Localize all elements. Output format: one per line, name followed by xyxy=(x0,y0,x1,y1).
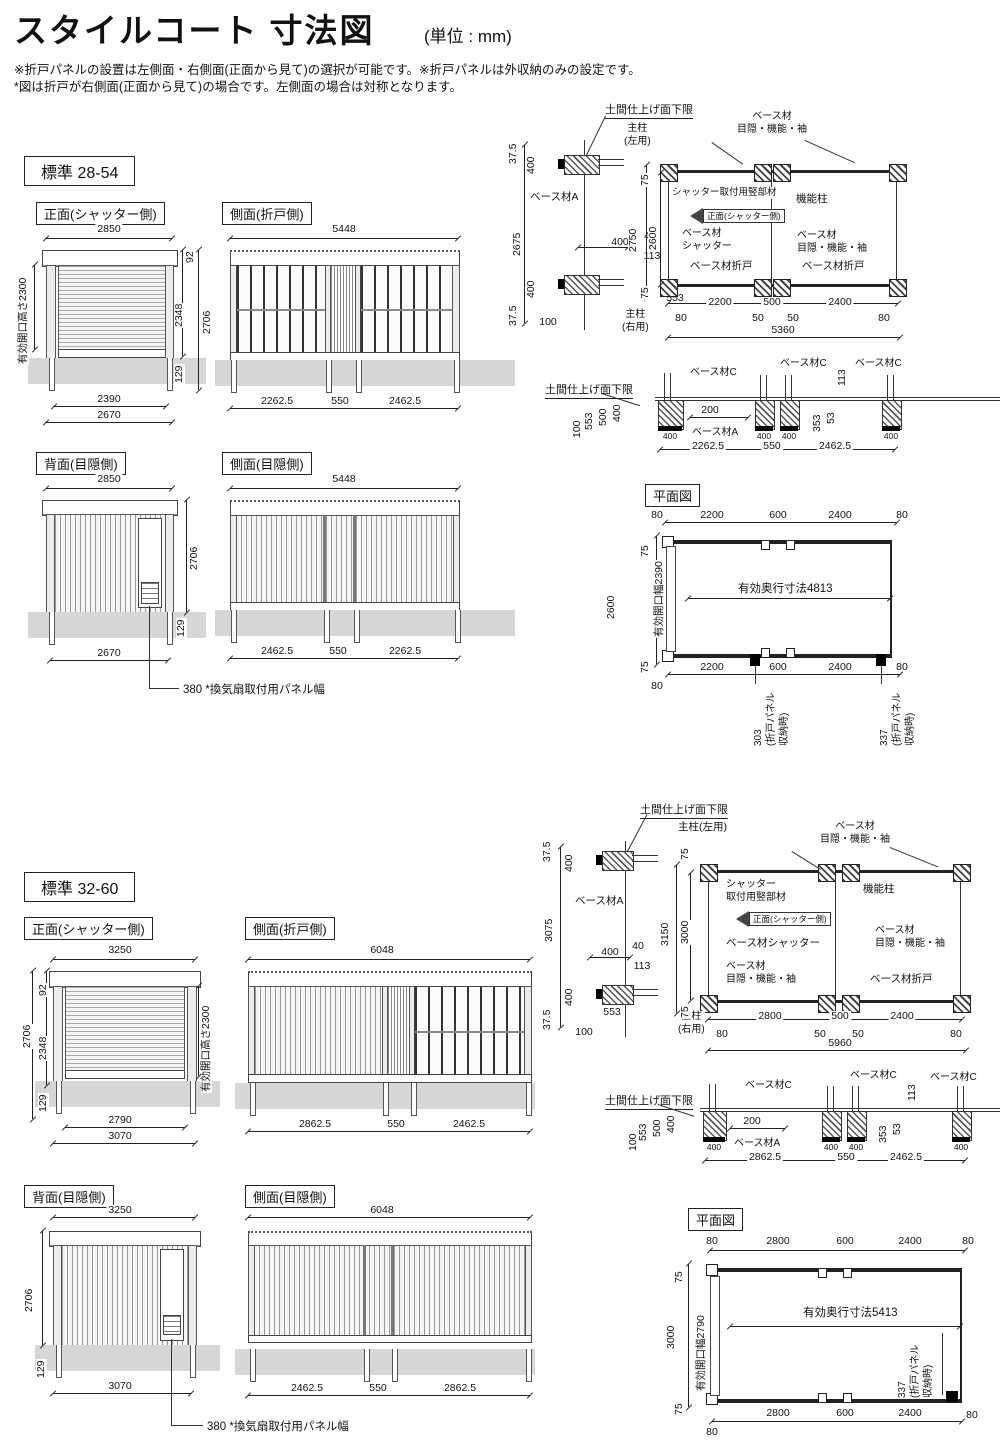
callout-leader xyxy=(942,1333,943,1395)
dim-line xyxy=(590,957,630,958)
mks-label-line: 目隠・機能・袖 xyxy=(737,124,807,137)
ground-strip xyxy=(215,360,515,386)
dim-label: 2462.5 xyxy=(451,1119,487,1131)
pin-line xyxy=(957,1086,958,1111)
base-block xyxy=(558,159,564,169)
dim-label: 400 xyxy=(526,155,537,175)
s2-side-priv-view: 側面(目隠側) 6048 2462.5 550 2862.5 xyxy=(235,1183,535,1451)
view-title: 正面(シャッター側) xyxy=(24,917,153,940)
dim-label: 2400 xyxy=(826,510,853,522)
pin-line xyxy=(598,279,624,280)
effective-depth-label: 有効奥行寸法5413 xyxy=(803,1304,898,1320)
frame-side xyxy=(708,873,709,1000)
main-post-left-label: 主柱(左用) xyxy=(678,821,727,834)
post-leg xyxy=(383,1083,389,1116)
post-leg xyxy=(49,358,55,391)
base-label-line: ベース材 xyxy=(797,230,867,243)
base-block xyxy=(558,279,564,289)
shutter-member-line1: シャッター xyxy=(726,879,786,892)
pin-line xyxy=(887,375,888,400)
stow-dim: 337 xyxy=(878,693,891,746)
panel-rail xyxy=(237,309,326,311)
dim-label: 92 xyxy=(185,250,196,264)
dim-label: 75 xyxy=(674,1270,685,1284)
post xyxy=(453,515,460,611)
leader-line xyxy=(791,851,820,870)
dim-label: 37.5 xyxy=(542,841,553,863)
frame-side xyxy=(668,173,669,284)
dim-label: 2670 xyxy=(95,648,122,660)
dim-label: 2400 xyxy=(896,1408,923,1420)
dim-label: 3000 xyxy=(680,920,691,945)
pin-line xyxy=(598,159,624,160)
post xyxy=(53,986,63,1087)
shutter-member-label: シャッター 取付用竪部材 xyxy=(726,879,786,904)
mks-label-line: 目隠・機能・袖 xyxy=(726,974,796,987)
dim-label: 40 xyxy=(630,941,646,953)
dim-line xyxy=(53,959,195,960)
post xyxy=(187,986,197,1087)
base-c-label: ベース材C xyxy=(780,358,827,371)
dim-label: 5448 xyxy=(330,474,357,486)
dim-label: 6048 xyxy=(368,1205,395,1217)
view-title: 正面(シャッター側) xyxy=(36,202,165,225)
callout-leader xyxy=(881,666,882,684)
floor-limit-label: 土間仕上げ面下限 xyxy=(605,101,693,119)
dim-label: 80 xyxy=(704,1236,720,1248)
dim-line xyxy=(578,247,628,248)
dim-line xyxy=(730,1326,960,1327)
dim-label: 113 xyxy=(907,1083,918,1102)
dim-label: 550 xyxy=(327,646,349,658)
dim-label: 400 xyxy=(781,432,797,441)
dim-line xyxy=(54,406,166,407)
base-a-label: ベース材A xyxy=(575,895,623,908)
s1-detail: 土間仕上げ面下限 37.5 400 2675 400 37.5 ベース材A 40… xyxy=(500,95,1000,355)
shutter-panel xyxy=(58,265,166,351)
s1-side-priv-view: 側面(目隠側) 5448 2462.5 550 2262.5 xyxy=(215,450,515,710)
stow-note-line2: 収納時) xyxy=(904,693,917,746)
post xyxy=(248,1245,255,1343)
dim-label: 2706 xyxy=(24,1288,35,1313)
dim-label: 80 xyxy=(649,510,665,522)
s2-front-view: 正面(シャッター側) 3250 92 2706 2348 129 有効開口高さ2… xyxy=(10,915,230,1160)
page-title: スタイルコート 寸法図 xyxy=(14,4,375,52)
base-mks-label-top: ベース材 目隠・機能・袖 xyxy=(737,111,807,136)
post-leg xyxy=(49,612,55,645)
floor-limit-label: 土間仕上げ面下限 xyxy=(605,1092,693,1110)
dim-label: 80 xyxy=(704,1427,720,1439)
dim-label: 600 xyxy=(834,1408,856,1420)
floor-limit-label: 土間仕上げ面下限 xyxy=(545,381,633,399)
post-plan xyxy=(843,1393,852,1403)
post-section xyxy=(818,864,836,882)
base-label-line: ベース材 xyxy=(737,111,807,124)
dim-line xyxy=(690,417,748,418)
stow-callout: 337 (折戸パネル 収納時) xyxy=(896,1345,935,1398)
dim-label: 400 xyxy=(564,987,575,1007)
dim-line xyxy=(248,1217,530,1218)
dim-label: 400 xyxy=(953,1143,969,1152)
post-leg xyxy=(231,610,237,643)
plan-wall-top xyxy=(668,540,892,544)
pin-line xyxy=(632,855,658,856)
dim-label: 2462.5 xyxy=(259,646,295,658)
dim-line xyxy=(660,173,661,284)
shutter-opening xyxy=(710,1276,720,1396)
dim-label: 75 xyxy=(680,847,691,861)
pin-line xyxy=(632,989,658,990)
dim-label: 113 xyxy=(632,961,653,973)
base-a-label: ベース材A xyxy=(734,1138,780,1151)
dim-label: 53 xyxy=(892,1122,903,1136)
view-title: 背面(目隠側) xyxy=(36,452,126,475)
post xyxy=(323,515,326,609)
dim-label: 75 xyxy=(640,286,651,300)
dim-line xyxy=(668,674,900,675)
dim-label: 2400 xyxy=(826,297,853,309)
base-c-label: ベース材C xyxy=(690,367,737,380)
base-c-label: ベース材C xyxy=(850,1070,897,1083)
post-plan xyxy=(818,1393,827,1403)
dim-line xyxy=(230,658,458,659)
dim-label: 2862.5 xyxy=(442,1383,478,1395)
post-leg xyxy=(250,1083,256,1116)
dim-label: 50 xyxy=(750,313,766,325)
front-direction-arrow: 正面(シャッター側) xyxy=(682,208,785,224)
dim-label: 5448 xyxy=(330,224,357,236)
dim-label: 553 xyxy=(584,411,595,431)
frame-side xyxy=(896,173,897,284)
dim-label: 50 xyxy=(785,313,801,325)
unit-note: (単位 : mm) xyxy=(424,22,512,47)
post-plan xyxy=(761,648,770,658)
post-section xyxy=(700,864,718,882)
folding-panel xyxy=(236,265,327,361)
effective-depth-label: 有効奥行寸法4813 xyxy=(738,580,833,596)
pin-line xyxy=(598,165,624,166)
bottom-rail xyxy=(58,349,166,358)
dim-line xyxy=(665,522,897,523)
stow-note-line1: (折戸パネル xyxy=(891,693,904,746)
section-label-28-54: 標準 28-54 xyxy=(24,156,135,186)
pin-line xyxy=(833,1086,834,1111)
function-post-label: 機能柱 xyxy=(796,193,828,206)
base-block xyxy=(602,985,634,1005)
drawing-sheet: スタイルコート 寸法図 (単位 : mm) ※折戸パネルの設置は左側面・右側面(… xyxy=(0,0,1000,1451)
mks-label-line: 目隠・機能・袖 xyxy=(820,834,890,847)
post-plan xyxy=(843,1268,852,1278)
mks-label-line: 目隠・機能・袖 xyxy=(875,938,945,951)
base-mks-label-right: ベース材 目隠・機能・袖 xyxy=(797,230,867,255)
stow-callout: 303 (折戸パネル 収納時) xyxy=(752,693,791,746)
post xyxy=(525,1245,532,1343)
dim-label: 2348 xyxy=(174,303,185,328)
dim-label: 600 xyxy=(767,510,789,522)
vent-grille xyxy=(163,1315,181,1335)
dim-label: 2675 xyxy=(512,232,523,257)
dim-label: 80 xyxy=(964,1410,980,1422)
dim-label: 550 xyxy=(385,1119,407,1131)
dim-label: 75 xyxy=(680,1005,691,1019)
stow-dim: 303 xyxy=(752,693,765,746)
dim-label: 2800 xyxy=(756,1011,783,1023)
dim-line xyxy=(668,337,900,338)
dim-label: 3250 xyxy=(106,1205,133,1217)
effective-opening-height-label: 有効開口高さ2300 xyxy=(201,1005,212,1093)
plan-wall-bottom xyxy=(712,1399,962,1403)
post-plan xyxy=(706,1264,718,1276)
view-title: 側面(目隠側) xyxy=(245,1185,335,1208)
post-section xyxy=(773,164,791,182)
bottom-rail xyxy=(248,1074,532,1083)
dim-label: 353 xyxy=(812,413,823,433)
post xyxy=(363,1245,366,1341)
view-title: 平面図 xyxy=(645,484,700,507)
dim-label: 37.5 xyxy=(508,305,519,327)
folding-panel xyxy=(414,986,526,1083)
dim-label: 3250 xyxy=(106,945,133,957)
shutter-panel xyxy=(65,986,185,1074)
pin-line xyxy=(709,1084,710,1111)
pin-line xyxy=(858,1086,859,1111)
dim-line xyxy=(46,422,172,423)
view-title: 背面(目隠側) xyxy=(24,1185,114,1208)
dim-line xyxy=(42,1231,43,1345)
base-mks-label-top: ベース材 目隠・機能・袖 xyxy=(820,821,890,846)
dim-label: 2462.5 xyxy=(817,441,853,453)
post-leg xyxy=(392,1349,398,1382)
post-section xyxy=(889,164,907,182)
dim-label: 75 xyxy=(674,1402,685,1416)
dim-label: 2790 xyxy=(106,1115,133,1127)
dim-line xyxy=(46,488,172,489)
post-section xyxy=(773,279,791,297)
privacy-slats xyxy=(254,986,384,1083)
leader-line xyxy=(890,847,939,867)
dim-line xyxy=(248,1131,530,1132)
dim-label: 2462.5 xyxy=(387,396,423,408)
dim-label: 5360 xyxy=(769,325,796,337)
pin-line xyxy=(852,1086,853,1111)
note-2: *図は折戸が右側面(正面から見て)の場合です。左側面の場合は対称となります。 xyxy=(14,76,462,95)
dim-label: 400 xyxy=(666,1114,677,1134)
post-leg xyxy=(231,360,237,393)
dim-label: 2348 xyxy=(38,1036,49,1061)
callout-leader xyxy=(755,666,756,684)
s2-side-fold-view: 側面(折戸側) 6048 2862.5 550 2462.5 xyxy=(235,915,535,1160)
dim-line xyxy=(186,500,187,612)
post-leg xyxy=(190,1081,196,1114)
stow-note-line2: 収納時) xyxy=(778,693,791,746)
post-leg xyxy=(354,610,360,643)
post-section xyxy=(754,164,772,182)
dim-label: 2200 xyxy=(698,662,725,674)
dim-line xyxy=(230,488,458,489)
frame-mid xyxy=(835,873,836,1000)
dim-label: 600 xyxy=(834,1236,856,1248)
leader-line xyxy=(805,140,856,163)
post-section xyxy=(953,864,971,882)
view-title: 側面(折戸側) xyxy=(245,917,335,940)
post xyxy=(391,1245,394,1341)
post-leg xyxy=(364,1349,370,1382)
dim-label: 2400 xyxy=(896,1236,923,1248)
dim-label: 200 xyxy=(741,1116,763,1128)
main-post-right-label: 主柱 (右用) xyxy=(622,309,649,334)
dim-label: 3150 xyxy=(660,922,671,947)
pin-line xyxy=(827,1086,828,1111)
post-section xyxy=(660,164,678,182)
main-post-left-label: 主柱 (左用) xyxy=(624,123,651,148)
dim-label: 2400 xyxy=(826,662,853,674)
dim-label: 2800 xyxy=(764,1236,791,1248)
pin-line xyxy=(670,373,671,400)
dim-line xyxy=(53,1143,195,1144)
base-label-line: ベース材 xyxy=(682,228,732,241)
dim-label: 129 xyxy=(38,1093,49,1113)
dim-line xyxy=(248,959,530,960)
section-label-32-60: 標準 32-60 xyxy=(24,872,135,902)
view-title: 側面(折戸側) xyxy=(222,202,312,225)
dim-label: 2200 xyxy=(706,297,733,309)
stow-dim: 337 xyxy=(896,1345,909,1398)
opening-width-label: 有効開口幅2390 xyxy=(654,560,665,638)
dim-label: 37.5 xyxy=(542,1009,553,1031)
post xyxy=(353,515,356,609)
dim-label: 553 xyxy=(638,1122,649,1142)
post-leg xyxy=(356,360,362,393)
dim-line xyxy=(560,847,561,1027)
dim-line xyxy=(688,1264,689,1407)
dim-label: 400 xyxy=(883,432,899,441)
dim-label: 2862.5 xyxy=(747,1152,783,1164)
main-post-right-label-line2: (右用) xyxy=(622,322,649,335)
s1-base-section: 土間仕上げ面下限 553 500 400 100 400 200 ベース材A ベ… xyxy=(540,355,1000,475)
dim-label: 80 xyxy=(894,510,910,522)
dim-label: 550 xyxy=(329,396,351,408)
post-leg xyxy=(326,360,332,393)
dim-label: 2706 xyxy=(189,546,200,571)
mks-label-line: 目隠・機能・袖 xyxy=(797,243,867,256)
base-c-label: ベース材C xyxy=(930,1072,977,1085)
base-label-line: ベース材 xyxy=(875,925,945,938)
dim-line xyxy=(50,660,168,661)
post-section xyxy=(754,279,772,297)
dim-label: 400 xyxy=(662,432,678,441)
callout-leader xyxy=(149,688,179,689)
dim-label: 2800 xyxy=(764,1408,791,1420)
dim-label: 113 xyxy=(837,368,848,387)
dim-label: 553 xyxy=(601,1007,623,1019)
dim-label: 80 xyxy=(948,1029,964,1041)
dim-label: 500 xyxy=(598,407,609,427)
post-section xyxy=(889,279,907,297)
dim-label: 500 xyxy=(829,1011,851,1023)
dim-line xyxy=(53,1217,195,1218)
dim-label: 500 xyxy=(652,1118,663,1138)
base-block xyxy=(564,155,600,175)
dim-label: 3070 xyxy=(106,1131,133,1143)
dim-label: 400 xyxy=(526,279,537,299)
stow-note-line2: 収納時) xyxy=(922,1345,935,1398)
pin-line xyxy=(632,995,658,996)
dim-label: 53 xyxy=(826,411,837,425)
dim-label: 2750 xyxy=(628,228,639,253)
fold-stow-mark xyxy=(750,654,760,666)
dim-line xyxy=(712,1421,962,1422)
opening-width-label: 有効開口幅2790 xyxy=(696,1314,707,1392)
base-shutter-label: ベース材シャッター xyxy=(726,937,820,950)
dim-label: 3075 xyxy=(544,918,555,943)
base-block xyxy=(564,275,600,295)
callout-leader xyxy=(171,1425,203,1426)
post-leg xyxy=(526,1349,532,1382)
dim-label: 2462.5 xyxy=(289,1383,325,1395)
post-plan xyxy=(786,540,795,550)
leader-line xyxy=(711,142,743,165)
front-direction-arrow: 正面(シャッター側) xyxy=(728,911,831,927)
post-plan xyxy=(786,648,795,658)
dim-label: 100 xyxy=(572,419,583,439)
dim-label: 400 xyxy=(564,853,575,873)
effective-opening-height-label: 有効開口高さ2300 xyxy=(18,277,29,365)
dim-label: 80 xyxy=(649,681,665,693)
post xyxy=(230,515,237,611)
shutter-label-line: シャッター xyxy=(682,241,732,254)
main-post-right-label-line1: 主柱 xyxy=(622,309,649,322)
leader-line xyxy=(626,814,648,853)
dim-label: 129 xyxy=(176,618,187,638)
post-leg xyxy=(526,1083,532,1116)
post-leg xyxy=(411,1083,417,1116)
pin-line xyxy=(715,1084,716,1111)
dim-label: 550 xyxy=(367,1383,389,1395)
dim-label: 600 xyxy=(767,662,789,674)
plan-wall-top xyxy=(712,1268,962,1272)
dim-label: 5960 xyxy=(826,1038,853,1050)
callout-leader xyxy=(171,1339,172,1425)
dim-line xyxy=(676,865,677,1013)
dim-label: 37.5 xyxy=(508,143,519,165)
post-leg xyxy=(167,612,173,645)
dim-label: 2850 xyxy=(95,474,122,486)
base-label-line: ベース材 xyxy=(726,961,796,974)
pin-line xyxy=(664,373,665,400)
pin-line xyxy=(893,375,894,400)
post-leg xyxy=(455,610,461,643)
panel-rail xyxy=(361,309,453,311)
pin-line xyxy=(791,375,792,400)
dim-line xyxy=(688,598,890,599)
s2-base-section: 土間仕上げ面下限 553 500 400 100 400 200 ベース材A ベ… xyxy=(600,1068,1000,1193)
bottom-rail xyxy=(65,1070,185,1079)
s2-detail: 土間仕上げ面下限 主柱(左用) 37.5 400 3075 400 37.5 ベ… xyxy=(530,795,1000,1060)
dim-line xyxy=(230,408,458,409)
dim-label: 2400 xyxy=(888,1011,915,1023)
pin-line xyxy=(760,375,761,400)
arrow-icon xyxy=(682,208,703,224)
leader-line xyxy=(585,116,606,158)
dim-line xyxy=(65,1127,185,1128)
dim-label: 400 xyxy=(612,403,623,423)
dim-line xyxy=(668,303,898,304)
dim-label: 75 xyxy=(640,173,651,187)
s1-side-fold-view: 側面(折戸側) 5448 2262.5 550 2462.5 xyxy=(215,200,515,450)
post xyxy=(46,265,56,364)
narrow-panel xyxy=(387,986,411,1083)
dim-label: 2862.5 xyxy=(297,1119,333,1131)
